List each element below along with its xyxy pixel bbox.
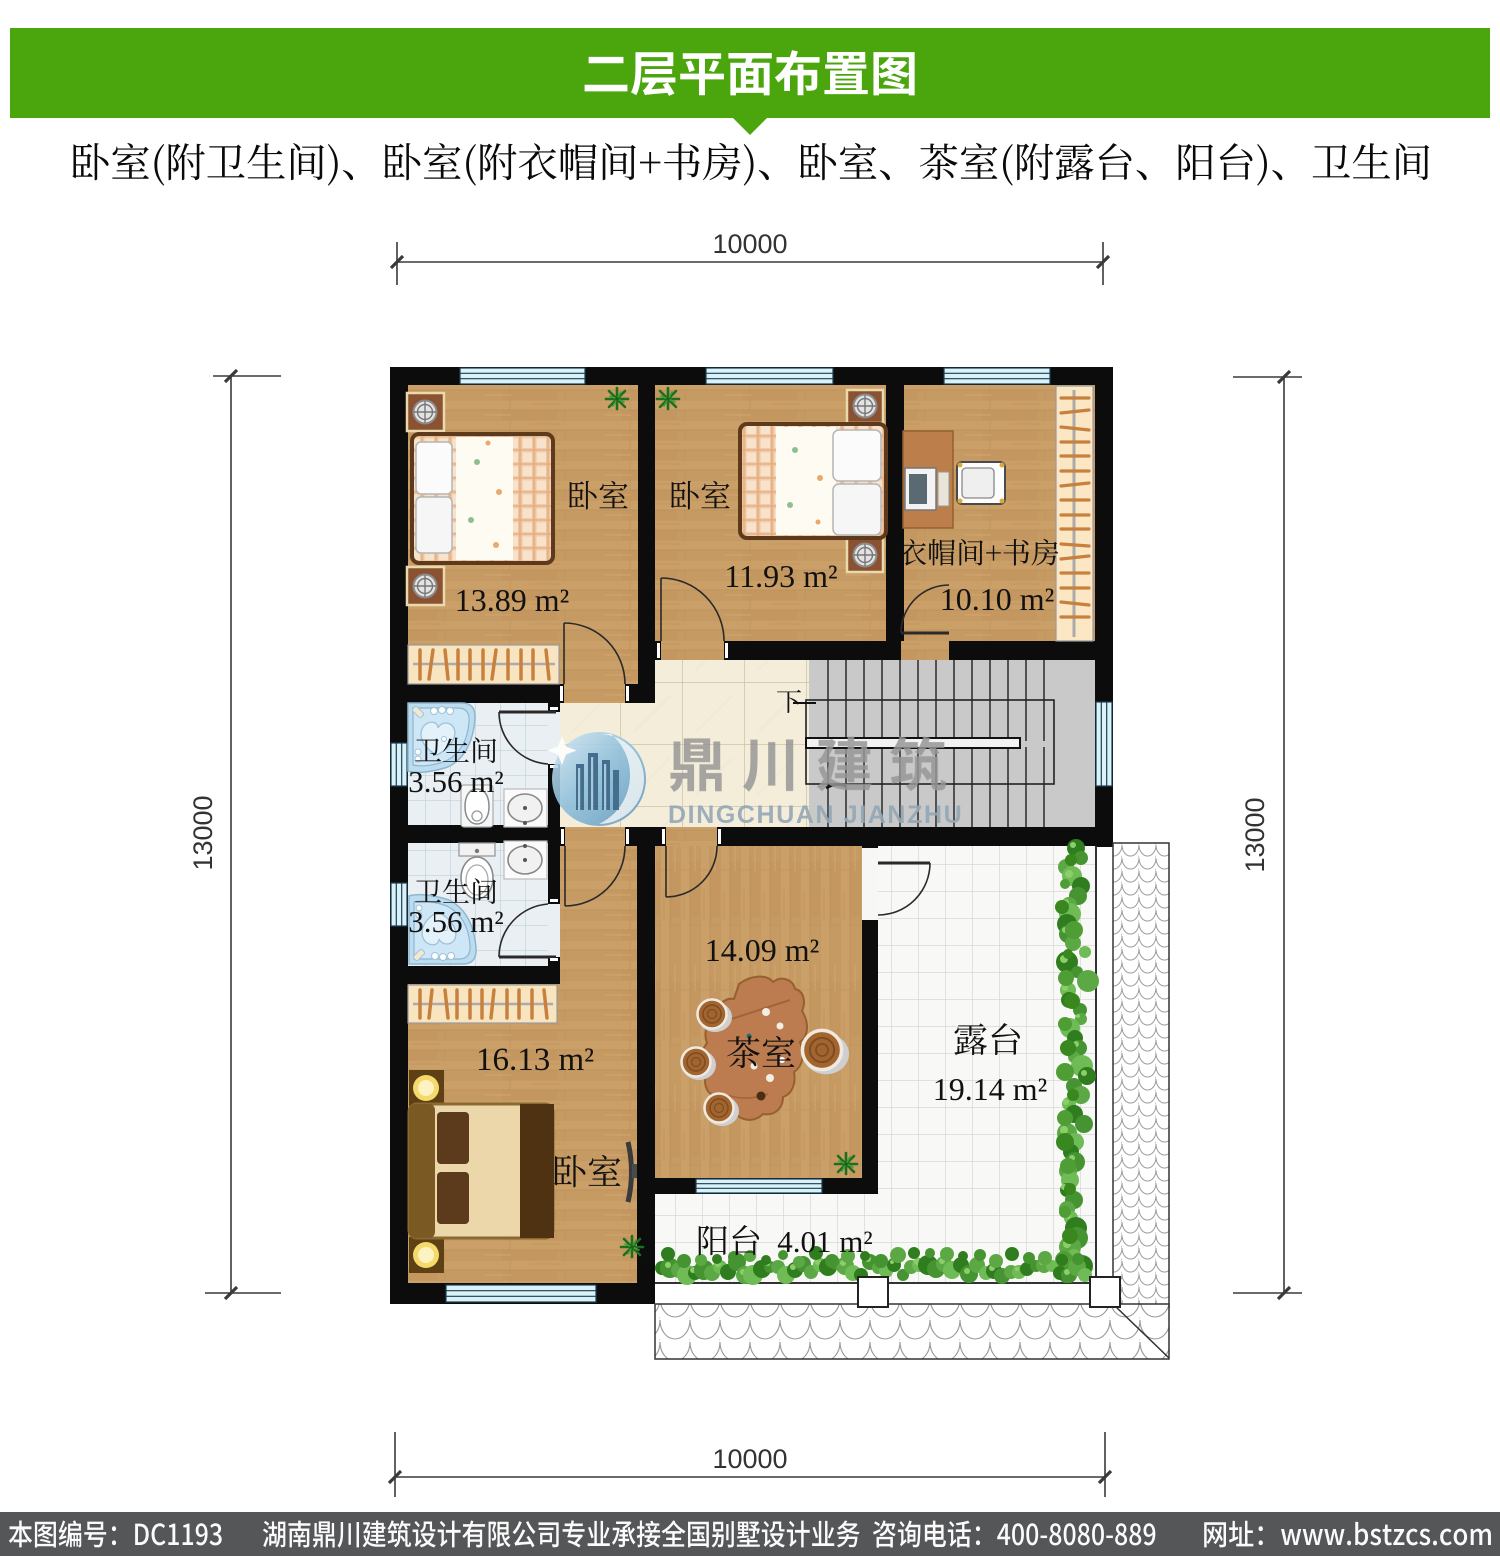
- svg-text:3.56 m²: 3.56 m²: [408, 764, 503, 799]
- svg-text:19.14 m²: 19.14 m²: [933, 1071, 1047, 1107]
- svg-text:14.09 m²: 14.09 m²: [705, 932, 819, 968]
- svg-text:16.13 m²: 16.13 m²: [476, 1042, 594, 1078]
- svg-text:3.56 m²: 3.56 m²: [408, 904, 503, 939]
- svg-text:10000: 10000: [712, 229, 787, 259]
- svg-text:13000: 13000: [1240, 797, 1270, 872]
- svg-text:4.01 m²: 4.01 m²: [777, 1224, 872, 1259]
- svg-text:13.89 m²: 13.89 m²: [455, 582, 569, 618]
- svg-text:13000: 13000: [188, 795, 218, 870]
- svg-text:10.10 m²: 10.10 m²: [940, 581, 1054, 617]
- svg-text:11.93 m²: 11.93 m²: [724, 558, 837, 594]
- svg-text:DINGCHUAN JIANZHU: DINGCHUAN JIANZHU: [668, 801, 963, 829]
- svg-text:10000: 10000: [712, 1444, 787, 1474]
